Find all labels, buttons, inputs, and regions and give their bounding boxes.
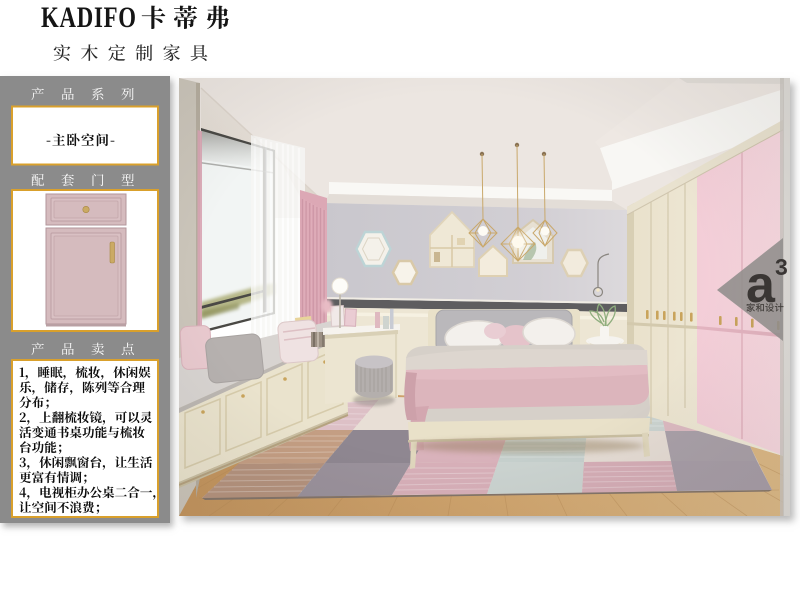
svg-text:3: 3	[775, 254, 788, 280]
svg-text:KADIFO: KADIFO	[41, 0, 137, 34]
